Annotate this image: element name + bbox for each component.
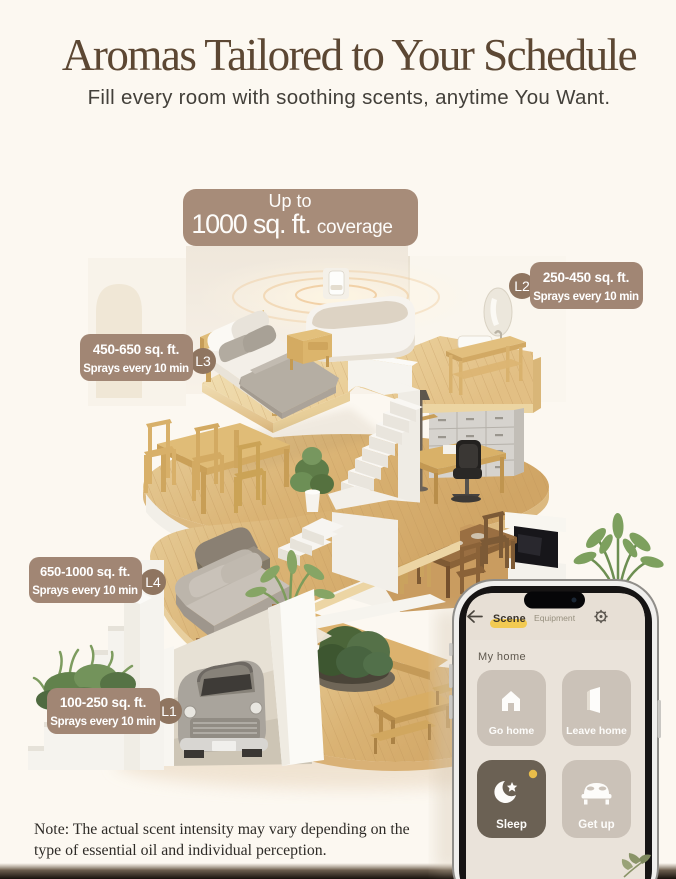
svg-text:100-250 sq. ft.: 100-250 sq. ft. xyxy=(60,695,146,710)
svg-text:Sprays every 10 min: Sprays every 10 min xyxy=(83,363,189,375)
svg-text:Fill every room with soothing: Fill every room with soothing scents, an… xyxy=(88,86,611,109)
svg-text:Up to: Up to xyxy=(268,191,311,211)
svg-text:Sprays every 10 min: Sprays every 10 min xyxy=(533,291,639,303)
svg-text:Equipment: Equipment xyxy=(534,613,576,623)
svg-text:Leave home: Leave home xyxy=(566,725,627,737)
svg-text:L2: L2 xyxy=(514,278,530,294)
svg-text:Note: The actual scent intensi: Note: The actual scent intensity may var… xyxy=(34,821,410,838)
svg-text:250-450 sq. ft.: 250-450 sq. ft. xyxy=(543,270,629,285)
svg-text:L1: L1 xyxy=(161,703,177,719)
svg-text:Scene: Scene xyxy=(493,613,526,625)
svg-text:650-1000 sq. ft.: 650-1000 sq. ft. xyxy=(40,564,130,579)
svg-text:Sleep: Sleep xyxy=(496,819,527,831)
svg-text:450-650 sq. ft.: 450-650 sq. ft. xyxy=(93,342,179,357)
svg-text:Get up: Get up xyxy=(578,819,614,831)
svg-text:L4: L4 xyxy=(145,574,161,590)
svg-text:type of essential oil and indi: type of essential oil and individual per… xyxy=(34,842,327,859)
svg-text:L3: L3 xyxy=(195,353,211,369)
svg-text:Aromas Tailored to Your Schedu: Aromas Tailored to Your Schedule xyxy=(62,30,637,80)
svg-text:Go home: Go home xyxy=(489,725,535,737)
svg-text:Sprays every 10 min: Sprays every 10 min xyxy=(50,716,156,728)
svg-text:My home: My home xyxy=(478,651,526,663)
svg-text:Sprays every 10 min: Sprays every 10 min xyxy=(32,585,138,597)
